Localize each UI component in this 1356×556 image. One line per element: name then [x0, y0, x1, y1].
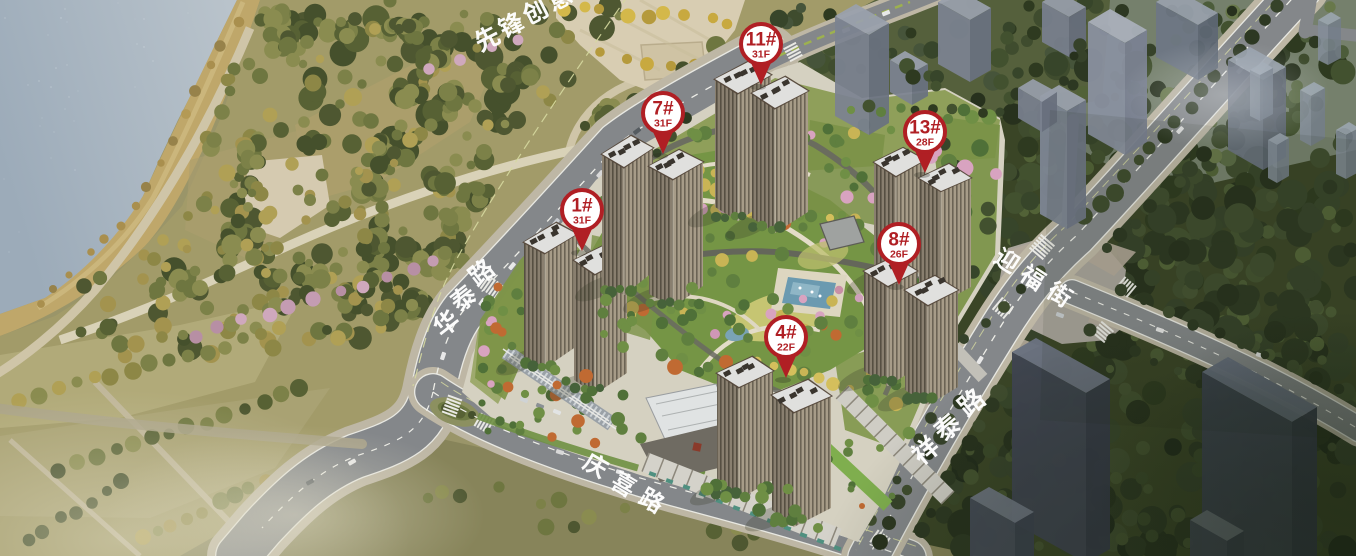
svg-text:11#: 11#: [746, 30, 777, 51]
svg-text:28F: 28F: [916, 137, 935, 149]
svg-text:13#: 13#: [909, 118, 941, 139]
svg-text:1#: 1#: [571, 196, 593, 217]
svg-text:4#: 4#: [775, 323, 797, 344]
svg-text:31F: 31F: [752, 49, 771, 61]
svg-text:31F: 31F: [654, 118, 673, 130]
svg-text:8#: 8#: [888, 230, 910, 251]
svg-text:22F: 22F: [777, 342, 796, 354]
svg-text:26F: 26F: [890, 249, 909, 261]
svg-text:7#: 7#: [652, 99, 674, 120]
svg-text:31F: 31F: [573, 215, 592, 227]
